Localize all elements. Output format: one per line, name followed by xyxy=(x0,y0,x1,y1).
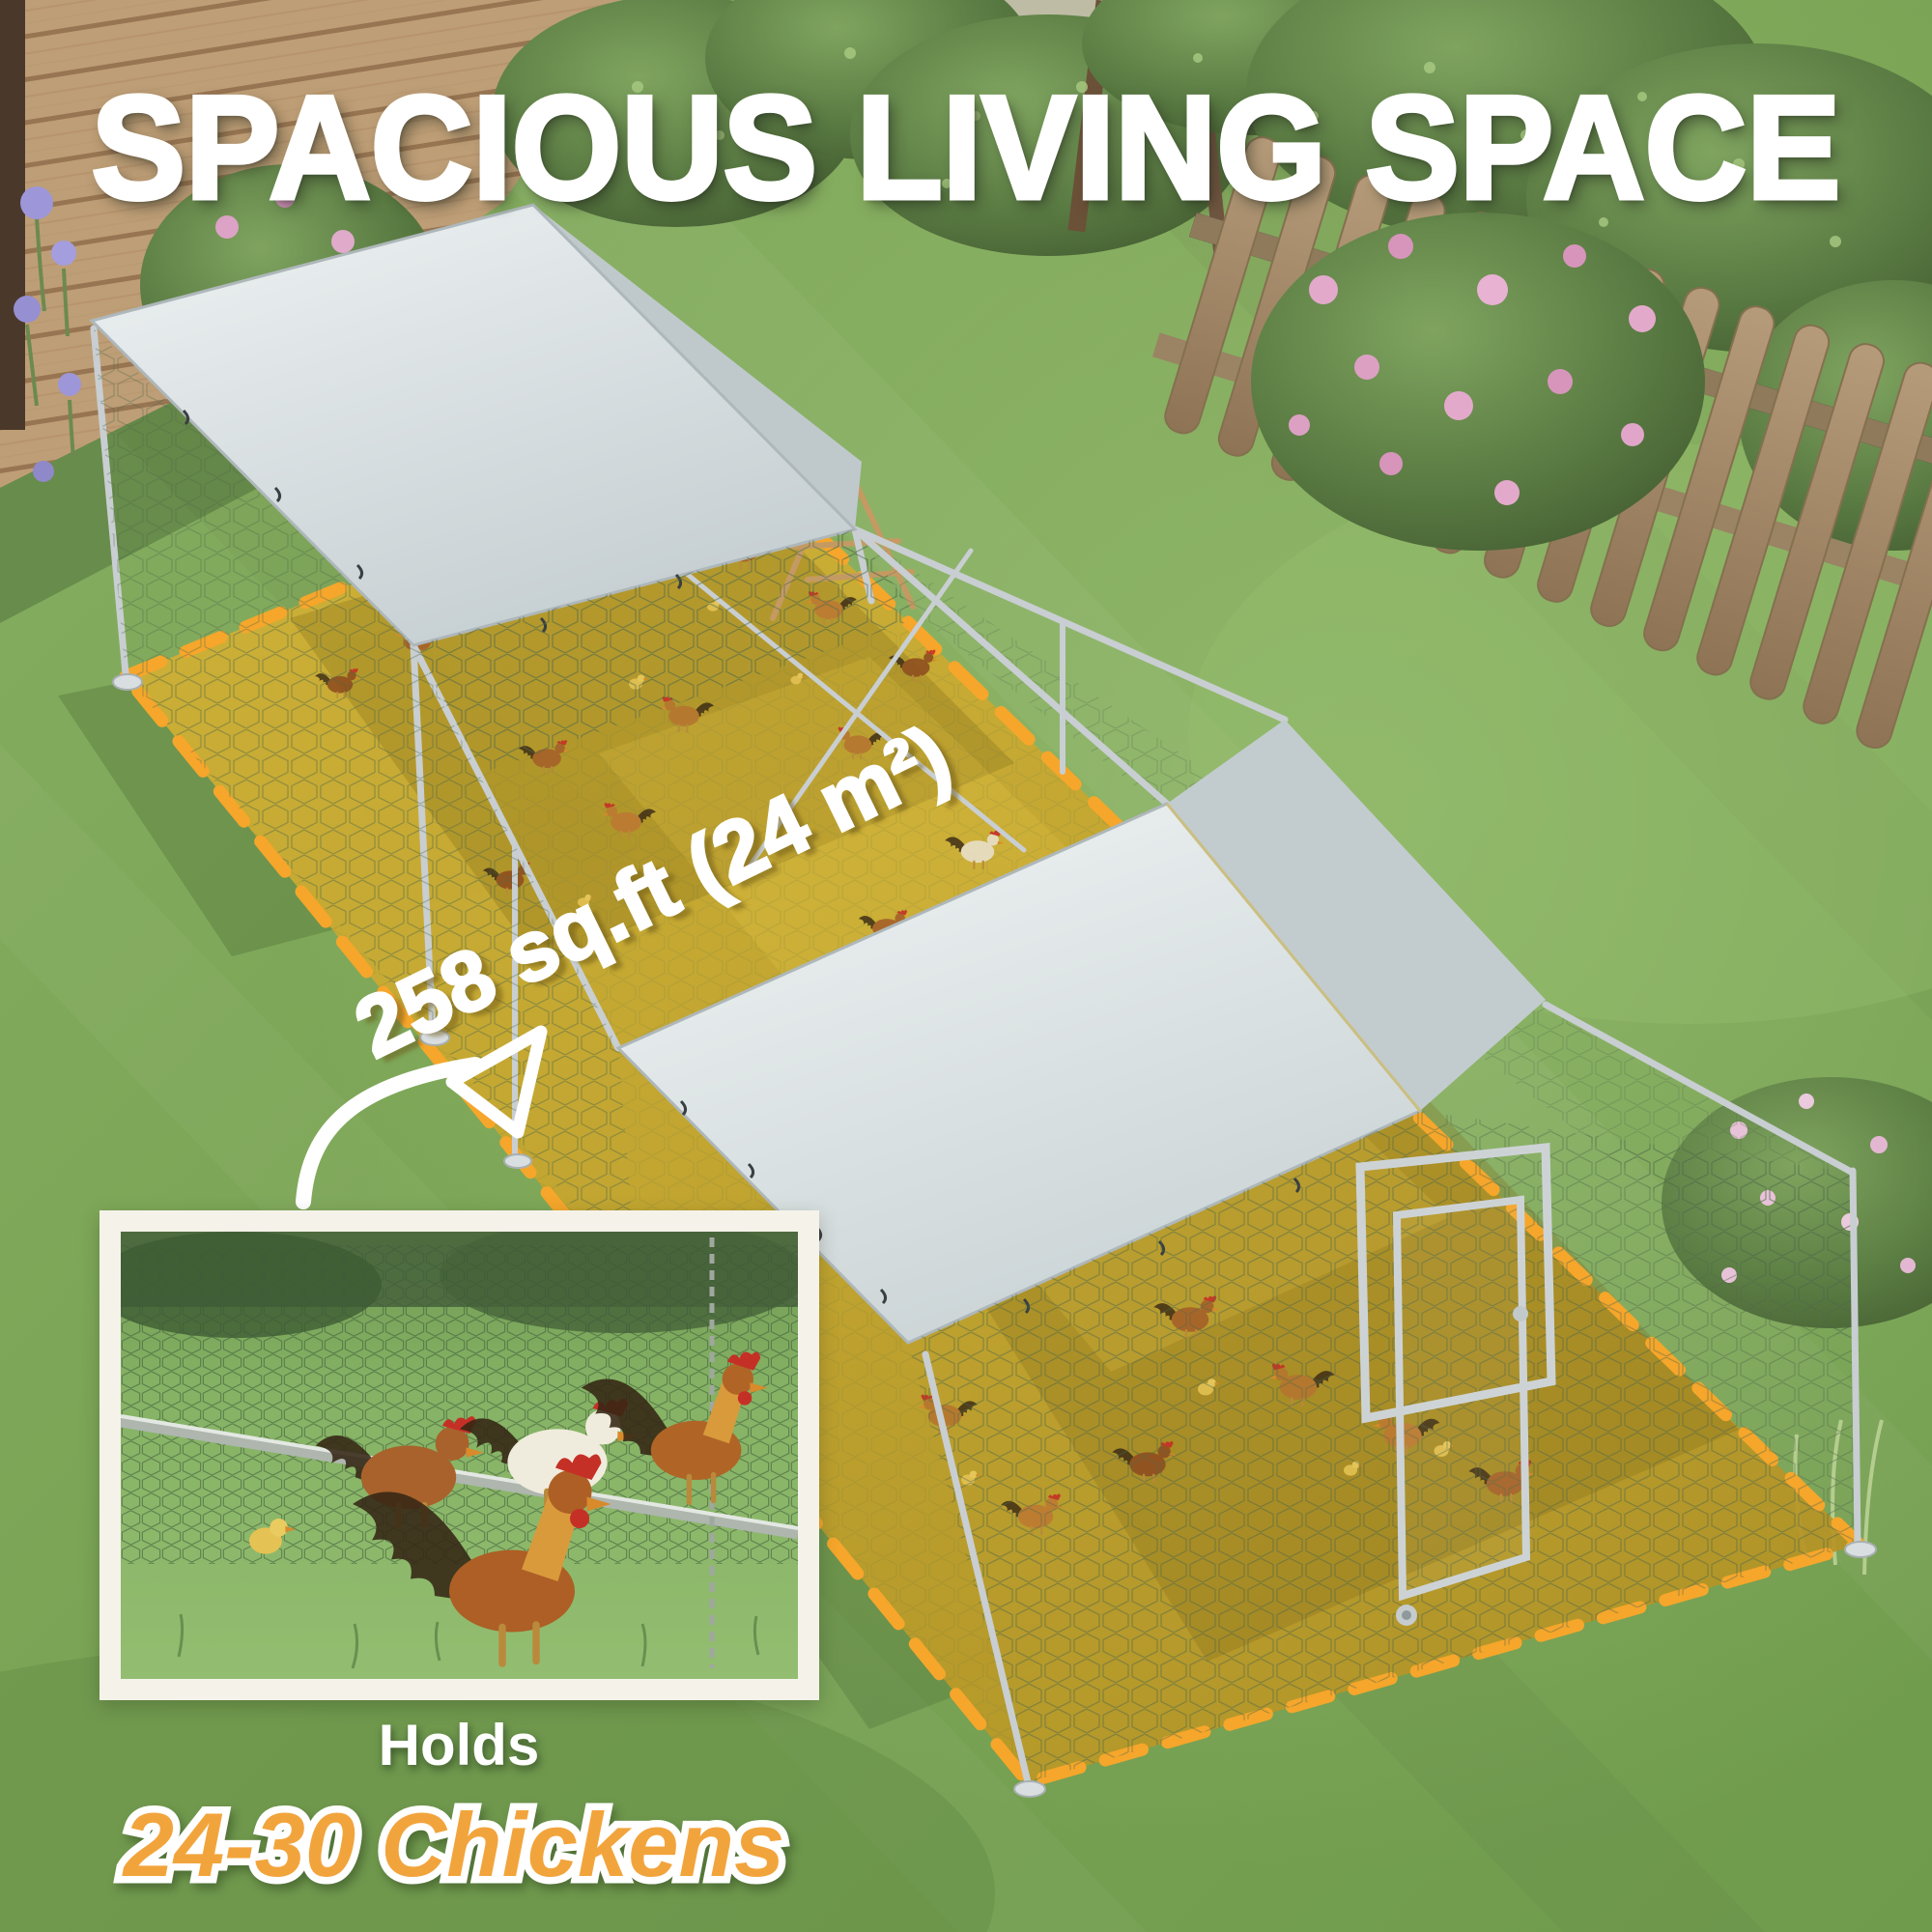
product-infographic: SPACIOUS LIVING SPACE 258 sq.ft (24 m²) xyxy=(0,0,1932,1932)
inset-photo-scene xyxy=(121,1232,798,1679)
caption-heading: Holds xyxy=(106,1712,811,1778)
caption-highlight-text: 24-30 Chickens xyxy=(10,1793,898,1897)
shed-post xyxy=(0,0,25,430)
door-handle xyxy=(1513,1306,1528,1321)
inset-photo xyxy=(99,1210,819,1700)
headline-title: SPACIOUS LIVING SPACE xyxy=(39,64,1893,233)
caption-highlight: 24-30 Chickens 24-30 Chickens xyxy=(10,1793,898,1918)
pink-bush-center xyxy=(1251,213,1705,551)
